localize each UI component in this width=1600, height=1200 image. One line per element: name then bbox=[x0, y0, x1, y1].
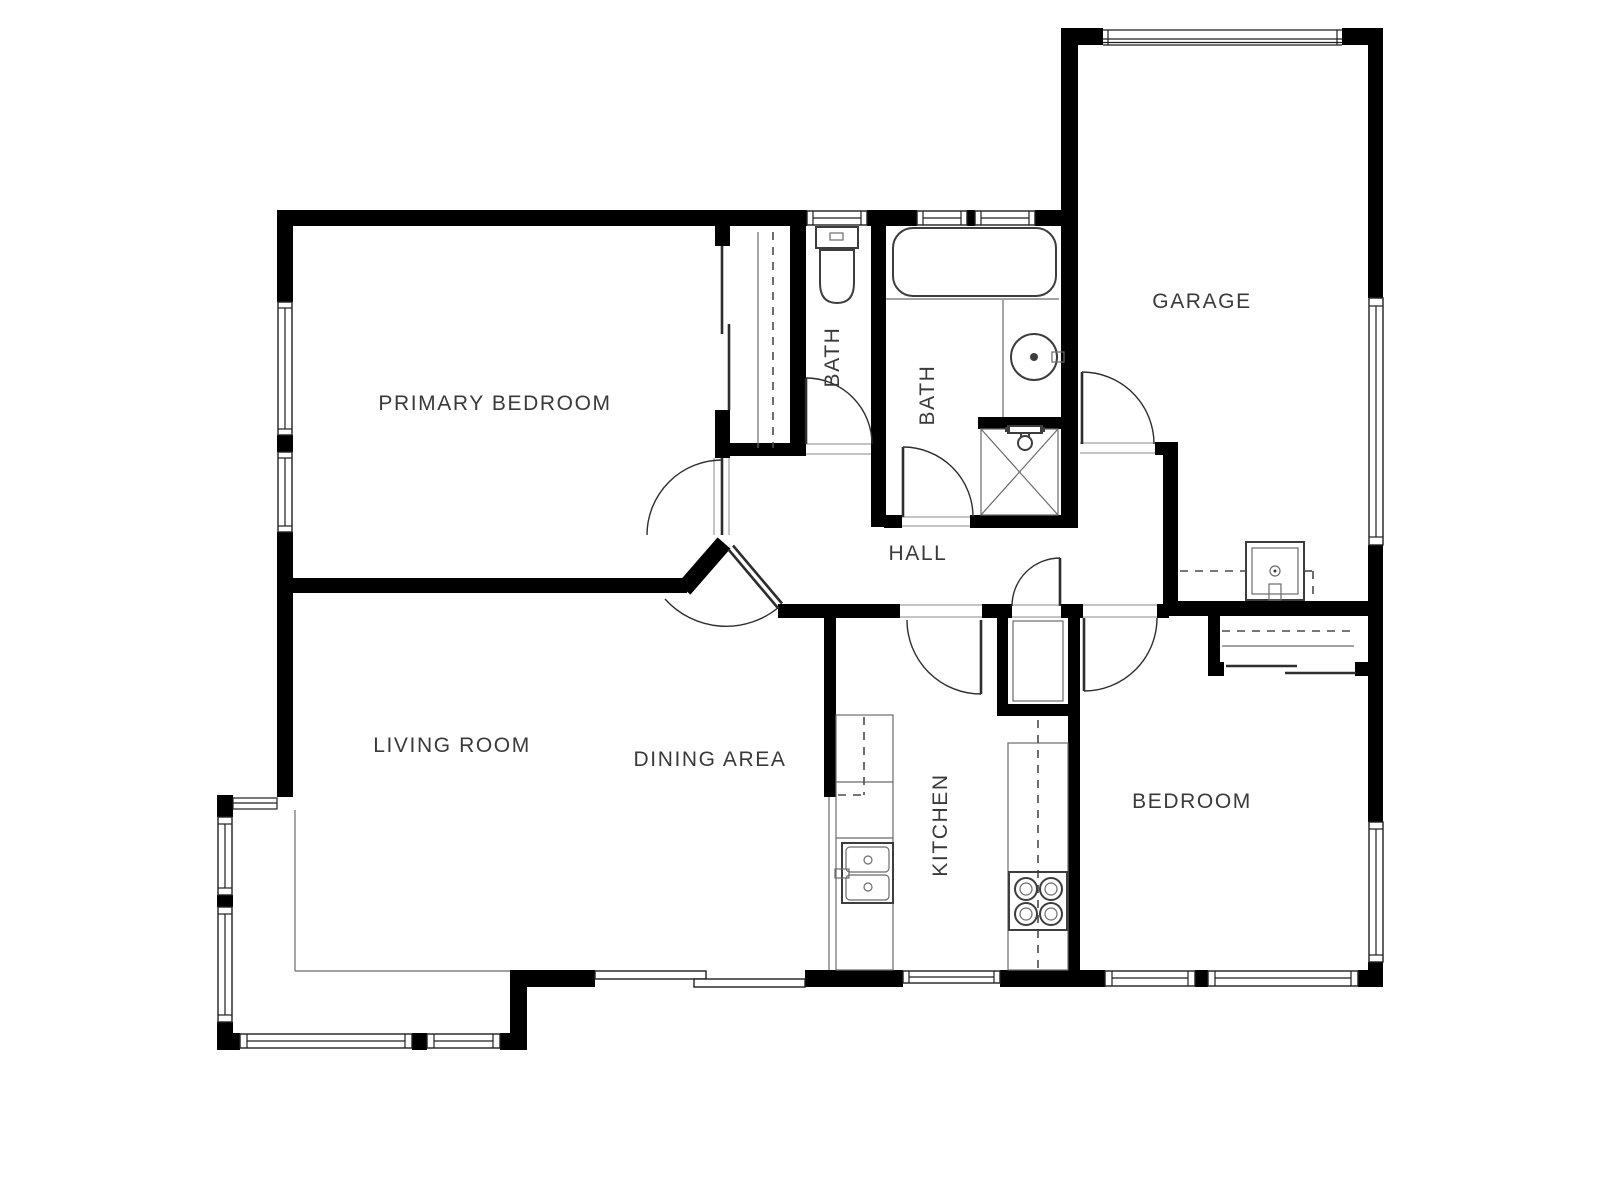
window-bay-bottom bbox=[240, 1034, 500, 1048]
window-garage-right bbox=[1369, 298, 1383, 545]
window-bedroom-right bbox=[1369, 822, 1383, 962]
window-bedroom-bottom bbox=[1105, 971, 1358, 986]
floorplan-canvas: PRIMARY BEDROOM BATH BATH GARAGE HALL LI… bbox=[0, 0, 1600, 1200]
shower-fixture bbox=[981, 426, 1058, 515]
label-kitchen: KITCHEN bbox=[929, 773, 952, 876]
bath-fixtures bbox=[816, 227, 1064, 515]
bedroom-closet bbox=[1222, 631, 1356, 673]
window-bath2 bbox=[917, 211, 1035, 225]
closets bbox=[722, 232, 1356, 701]
hall-closet bbox=[1013, 621, 1063, 701]
label-garage: GARAGE bbox=[1152, 290, 1251, 313]
walls bbox=[217, 28, 1383, 1050]
label-hall: HALL bbox=[889, 542, 948, 565]
door-bath2 bbox=[903, 447, 973, 517]
bay-alcove-edge bbox=[295, 810, 510, 971]
door-kitchen bbox=[907, 620, 981, 694]
kitchen-sink-fixture bbox=[835, 843, 893, 903]
door-hall-closet bbox=[1012, 558, 1060, 606]
label-bath1: BATH bbox=[821, 327, 844, 388]
door-sills bbox=[714, 443, 1157, 617]
toilet-fixture bbox=[816, 227, 858, 303]
window-kitchen bbox=[903, 971, 1000, 983]
window-bay-return bbox=[233, 798, 277, 809]
window-bath1 bbox=[807, 211, 867, 225]
garage-door bbox=[1103, 28, 1342, 45]
label-bedroom: BEDROOM bbox=[1132, 790, 1252, 813]
bath-sink-fixture bbox=[1003, 300, 1064, 417]
label-bath2: BATH bbox=[916, 365, 939, 426]
floorplan-drawing: PRIMARY BEDROOM BATH BATH GARAGE HALL LI… bbox=[0, 0, 1600, 1200]
label-primary-bedroom: PRIMARY BEDROOM bbox=[378, 392, 611, 415]
water-heater-fixture bbox=[1246, 542, 1304, 600]
bathtub-fixture bbox=[886, 228, 1059, 299]
door-bedroom bbox=[1084, 618, 1157, 691]
window-primary-left bbox=[278, 302, 292, 532]
sliding-patio-door bbox=[595, 971, 805, 987]
windows bbox=[218, 28, 1383, 1048]
door-primary-bedroom bbox=[647, 458, 722, 535]
window-bay-left bbox=[218, 817, 232, 1022]
door-garage bbox=[1082, 372, 1154, 444]
garage-fixtures bbox=[1180, 542, 1313, 600]
label-living-room: LIVING ROOM bbox=[373, 734, 531, 757]
label-dining-area: DINING AREA bbox=[634, 748, 787, 771]
